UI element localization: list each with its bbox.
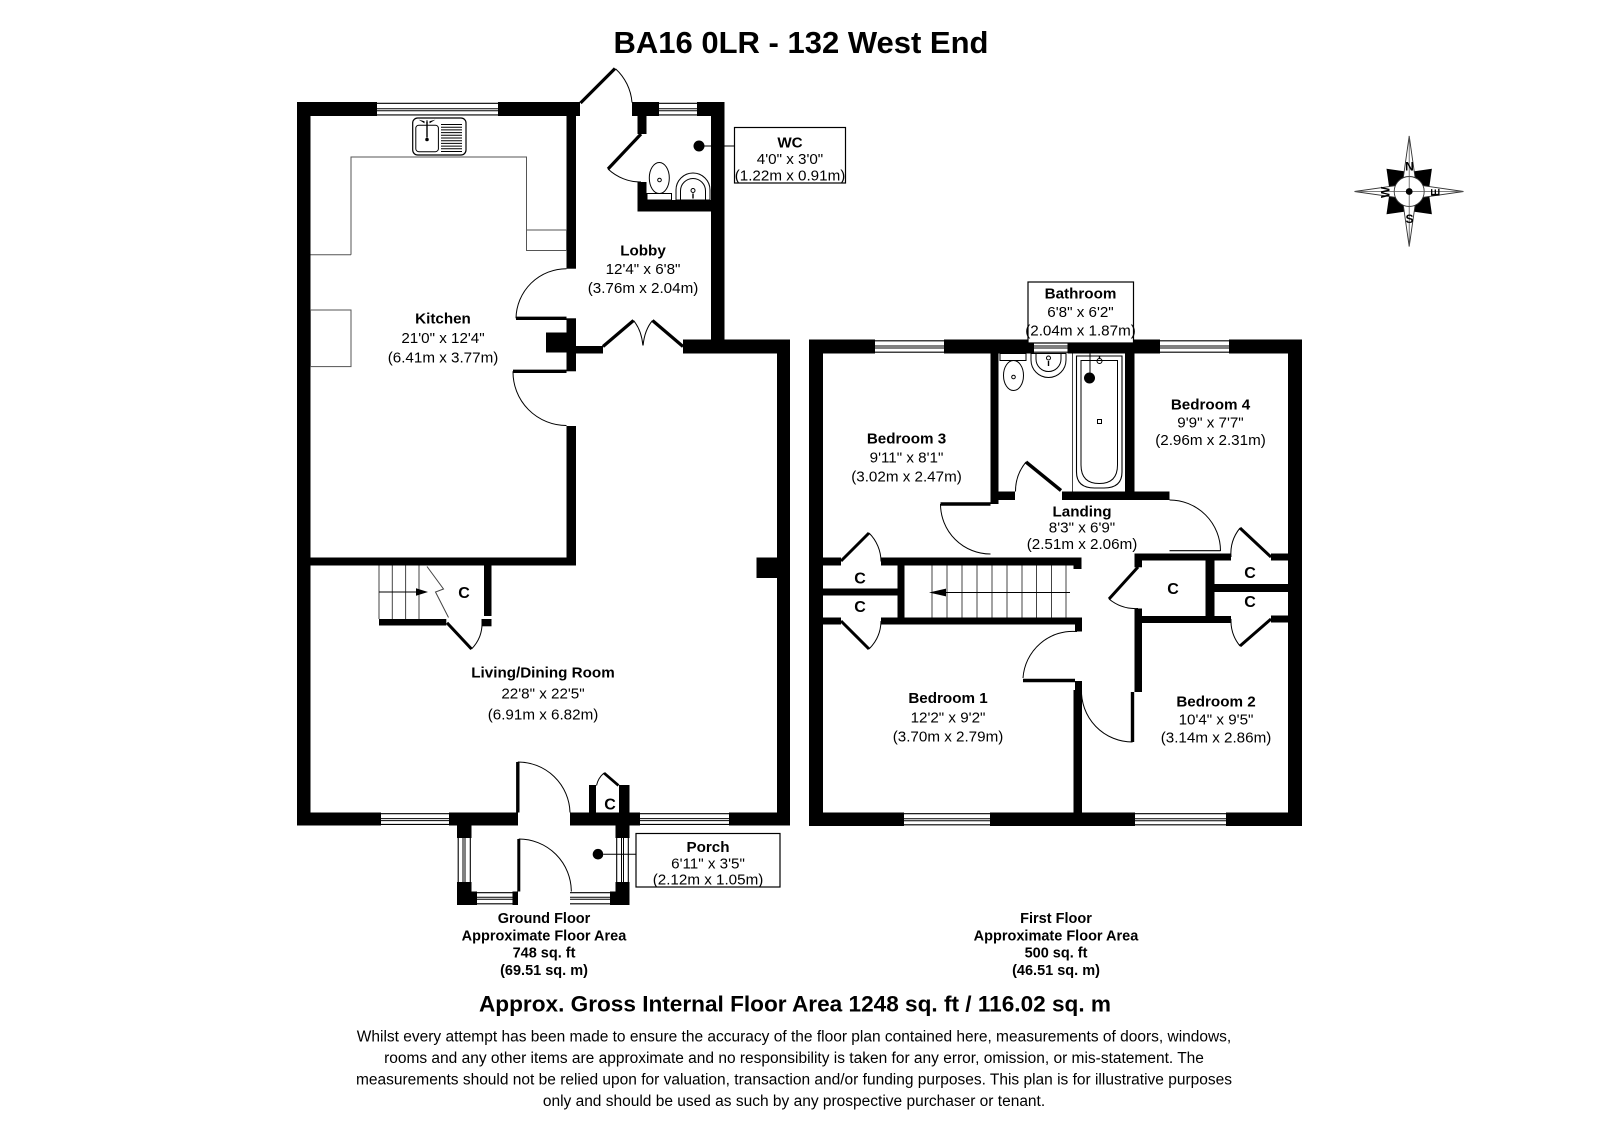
- svg-text:measurements should not be rel: measurements should not be relied upon f…: [356, 1072, 1232, 1089]
- svg-text:only and should be used as suc: only and should be used as such by any p…: [543, 1093, 1045, 1110]
- svg-text:C: C: [1244, 565, 1256, 582]
- svg-text:Living/Dining Room: Living/Dining Room: [471, 665, 614, 682]
- svg-text:Kitchen: Kitchen: [415, 311, 471, 328]
- svg-text:Approx. Gross Internal Floor A: Approx. Gross Internal Floor Area 1248 s…: [479, 992, 1111, 1017]
- svg-text:Bedroom 4: Bedroom 4: [1171, 397, 1251, 414]
- svg-text:22'8" x 22'5": 22'8" x 22'5": [501, 686, 584, 703]
- svg-text:500 sq. ft: 500 sq. ft: [1025, 946, 1088, 962]
- svg-text:(1.22m x 0.91m): (1.22m x 0.91m): [735, 168, 846, 185]
- svg-text:12'4" x 6'8": 12'4" x 6'8": [606, 261, 681, 278]
- svg-text:E: E: [1429, 188, 1443, 196]
- svg-text:(3.02m x 2.47m): (3.02m x 2.47m): [851, 468, 962, 485]
- svg-text:(3.76m x 2.04m): (3.76m x 2.04m): [588, 280, 699, 297]
- svg-text:rooms and any other items are: rooms and any other items are approximat…: [384, 1050, 1204, 1067]
- svg-text:(2.96m x 2.31m): (2.96m x 2.31m): [1155, 432, 1266, 449]
- svg-text:N: N: [1405, 160, 1414, 174]
- svg-text:8'3" x 6'9": 8'3" x 6'9": [1049, 520, 1115, 537]
- svg-text:(46.51 sq. m): (46.51 sq. m): [1012, 963, 1100, 979]
- svg-text:S: S: [1405, 212, 1413, 226]
- svg-text:(2.12m x 1.05m): (2.12m x 1.05m): [653, 872, 764, 889]
- svg-text:10'4" x 9'5": 10'4" x 9'5": [1179, 712, 1254, 729]
- svg-text:Bedroom 1: Bedroom 1: [908, 690, 988, 707]
- svg-text:C: C: [604, 797, 616, 814]
- svg-text:Porch: Porch: [686, 839, 729, 856]
- svg-text:Approximate Floor Area: Approximate Floor Area: [462, 928, 628, 944]
- svg-text:(6.91m x 6.82m): (6.91m x 6.82m): [488, 707, 599, 724]
- svg-text:C: C: [1244, 594, 1256, 611]
- svg-text:Bathroom: Bathroom: [1045, 286, 1117, 303]
- svg-text:Approximate Floor Area: Approximate Floor Area: [974, 928, 1140, 944]
- svg-text:9'11" x 8'1": 9'11" x 8'1": [870, 450, 944, 467]
- svg-text:(3.14m x 2.86m): (3.14m x 2.86m): [1161, 730, 1272, 747]
- svg-text:12'2" x 9'2": 12'2" x 9'2": [911, 709, 986, 726]
- svg-text:Bedroom 2: Bedroom 2: [1176, 694, 1255, 711]
- svg-text:Landing: Landing: [1052, 504, 1111, 521]
- svg-text:BA16 0LR - 132 West End: BA16 0LR - 132 West End: [614, 25, 989, 60]
- svg-text:(3.70m x 2.79m): (3.70m x 2.79m): [893, 729, 1004, 746]
- svg-text:748 sq. ft: 748 sq. ft: [513, 946, 576, 962]
- svg-text:Whilst every attempt has been: Whilst every attempt has been made to en…: [357, 1029, 1232, 1046]
- svg-text:WC: WC: [777, 135, 802, 152]
- svg-text:6'8" x 6'2": 6'8" x 6'2": [1047, 304, 1113, 321]
- svg-text:First Floor: First Floor: [1020, 911, 1092, 927]
- svg-text:(2.04m x 1.87m): (2.04m x 1.87m): [1025, 323, 1136, 340]
- svg-text:(69.51 sq. m): (69.51 sq. m): [500, 963, 588, 979]
- svg-text:C: C: [854, 599, 866, 616]
- svg-text:(6.41m x 3.77m): (6.41m x 3.77m): [388, 350, 499, 367]
- svg-text:Ground Floor: Ground Floor: [498, 911, 591, 927]
- svg-text:C: C: [1167, 581, 1179, 598]
- svg-text:6'11" x 3'5": 6'11" x 3'5": [671, 856, 745, 873]
- svg-text:9'9" x 7'7": 9'9" x 7'7": [1177, 415, 1243, 432]
- svg-text:4'0" x 3'0": 4'0" x 3'0": [757, 151, 823, 168]
- svg-text:C: C: [854, 571, 866, 588]
- svg-text:Bedroom 3: Bedroom 3: [867, 431, 946, 448]
- svg-text:(2.51m x 2.06m): (2.51m x 2.06m): [1027, 536, 1138, 553]
- svg-text:C: C: [458, 585, 470, 602]
- svg-text:Lobby: Lobby: [620, 243, 666, 260]
- svg-text:W: W: [1379, 186, 1393, 198]
- svg-text:21'0" x 12'4": 21'0" x 12'4": [401, 330, 484, 347]
